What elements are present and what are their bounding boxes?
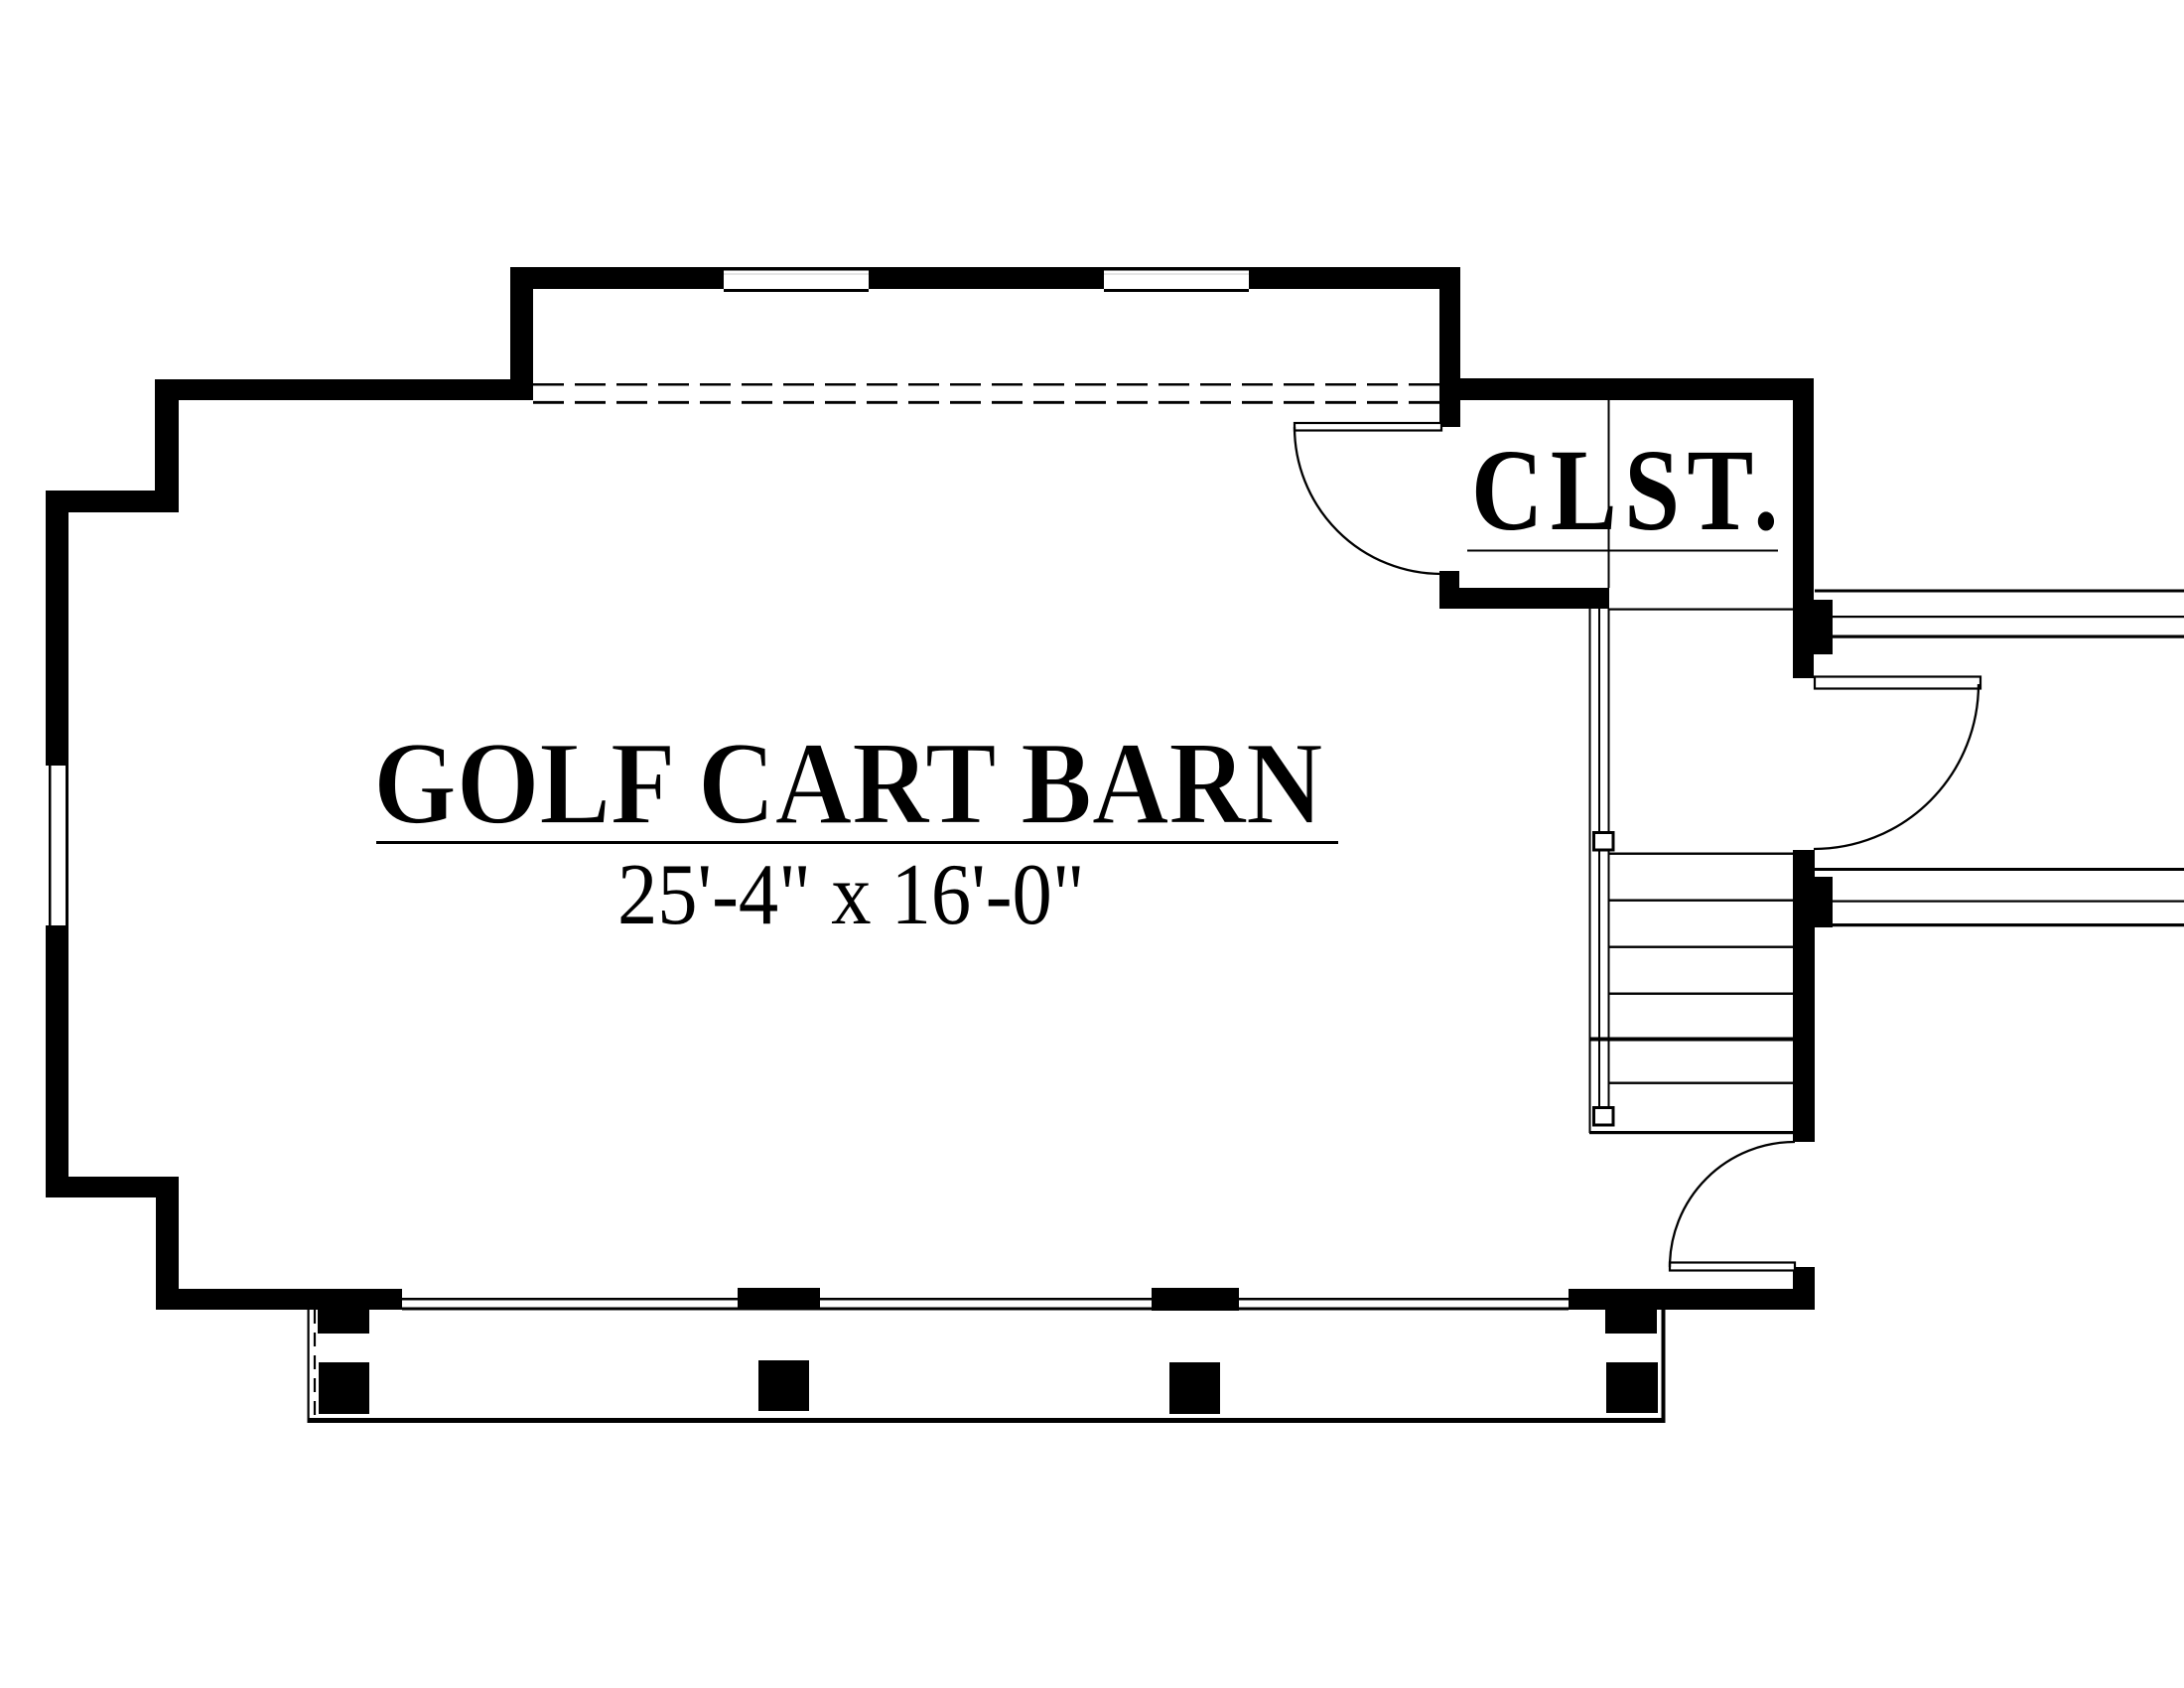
svg-text:GOLF CART BARN: GOLF CART BARN bbox=[373, 717, 1323, 849]
svg-text:CLST.: CLST. bbox=[1471, 424, 1778, 554]
svg-text:25'-4" x 16'-0": 25'-4" x 16'-0" bbox=[617, 846, 1085, 943]
